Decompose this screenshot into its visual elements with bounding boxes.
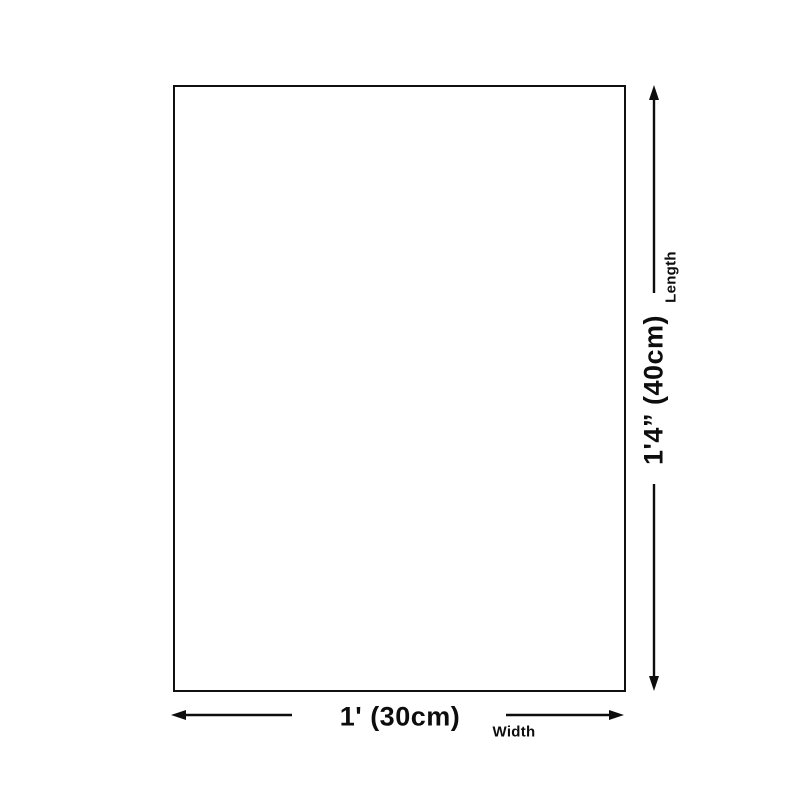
dimension-diagram: 1'4” (40cm) Length 1' (30cm) Width <box>0 0 800 800</box>
width-axis-label: Width <box>492 724 535 741</box>
width-arrow-right-icon <box>506 708 624 722</box>
width-value-label: 1' (30cm) <box>340 702 460 733</box>
width-arrow-left-icon <box>171 708 293 722</box>
length-value-label: 1'4” (40cm) <box>639 315 670 465</box>
length-axis-label: Length <box>663 251 680 303</box>
length-arrow-down-icon <box>647 484 661 691</box>
product-size-rectangle <box>173 85 626 692</box>
length-arrow-up-icon <box>647 85 661 294</box>
